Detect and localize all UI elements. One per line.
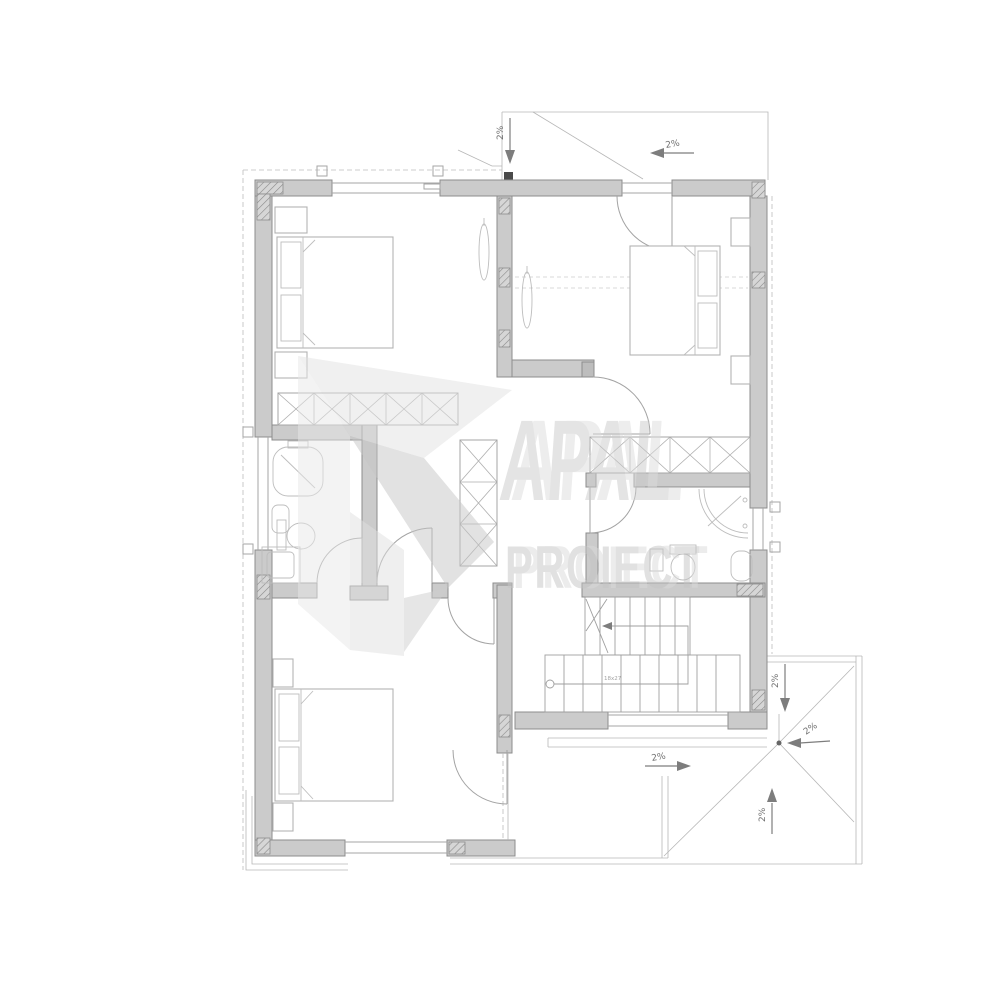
bed-bedroom-tl bbox=[275, 207, 393, 378]
hatch bbox=[752, 272, 765, 288]
slope-arrow-top-right: 2% bbox=[650, 139, 694, 158]
nightstand bbox=[731, 218, 750, 246]
door-bedroom-bl bbox=[448, 598, 494, 644]
staircase: 18x27 bbox=[545, 597, 740, 712]
hatch bbox=[257, 194, 270, 220]
slope-label: 2% bbox=[665, 139, 681, 151]
slope-arrow-terrace-center: 2% bbox=[645, 752, 691, 771]
window-stair-hall bbox=[608, 715, 728, 726]
door-bedroom-tr-top bbox=[617, 196, 672, 251]
slope-label: 2% bbox=[771, 673, 781, 688]
nightstand bbox=[273, 659, 293, 687]
hatch bbox=[737, 584, 763, 596]
slope-arrow-terrace-drain: 2% bbox=[787, 721, 830, 748]
hatch bbox=[257, 182, 283, 194]
hatch bbox=[752, 690, 765, 710]
hatch bbox=[499, 330, 510, 347]
hatch bbox=[499, 715, 510, 737]
slope-arrow-top-center: 2% bbox=[496, 118, 515, 164]
hatch bbox=[499, 268, 510, 287]
hatch bbox=[257, 575, 270, 599]
slope-label: 2% bbox=[802, 721, 820, 738]
slope-arrow-terrace-bottom: 2% bbox=[758, 788, 777, 834]
washbasin bbox=[272, 505, 289, 533]
window-bottom bbox=[345, 842, 447, 853]
bed-bedroom-bl bbox=[273, 659, 393, 831]
washbasin bbox=[731, 551, 752, 581]
hatch bbox=[257, 838, 270, 854]
bed-bedroom-tr bbox=[630, 218, 750, 384]
hatch bbox=[752, 182, 765, 198]
wall-right-upper bbox=[750, 196, 767, 508]
door-terrace bbox=[453, 750, 507, 804]
slope-arrow-terrace-right-upper: 2% bbox=[771, 664, 790, 712]
drain-point bbox=[777, 741, 782, 746]
wall-int-h1-cap bbox=[582, 362, 594, 377]
corner-shower bbox=[699, 489, 748, 538]
stair-dimension-label: 18x27 bbox=[604, 676, 622, 682]
slope-label: 2% bbox=[758, 807, 768, 822]
slope-label: 2% bbox=[496, 125, 506, 140]
nightstand bbox=[731, 356, 750, 384]
window-left bbox=[243, 427, 268, 554]
door-top-threshold bbox=[622, 183, 672, 193]
window-right bbox=[753, 502, 780, 552]
hatch bbox=[499, 198, 510, 214]
wall-left-upper bbox=[255, 196, 272, 437]
floor-plan-sheet: 18x27 2% 2% 2% 2% 2% bbox=[0, 0, 1000, 1000]
hatch bbox=[449, 842, 465, 854]
wall-stair-bottom-b bbox=[728, 712, 767, 729]
floor-plan-drawing: 18x27 2% 2% 2% 2% 2% bbox=[0, 0, 1000, 1000]
wall-top-c bbox=[672, 180, 765, 196]
watermark-subtitle: PROIECT bbox=[505, 534, 701, 601]
wall-stair-bottom-a bbox=[515, 712, 608, 729]
watermark-brand: APAL bbox=[496, 397, 677, 525]
wall-top-b bbox=[440, 180, 622, 196]
nightstand bbox=[275, 207, 307, 233]
slope-label: 2% bbox=[651, 752, 667, 764]
nightstand bbox=[273, 803, 293, 831]
